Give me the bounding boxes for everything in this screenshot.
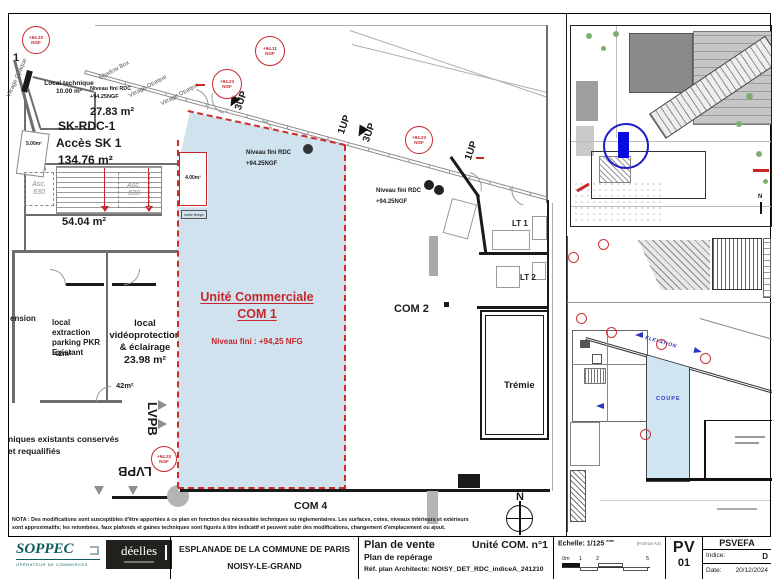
marker-ring [598,239,609,250]
doc-type2: Plan de repérage [364,552,548,562]
plan-sheet: Vitrage Opaque Shadow Box Vitrage Opaque… [0,0,784,588]
room-label-video: localvidéoprotection& éclairage 23.98 m² [108,318,182,367]
canopy-line [95,25,547,26]
com2-niveau: Niveau fini RDC+94.25NGF [376,186,421,208]
niveau-label: Niveau fini RDC+94.25NGF [90,86,131,101]
level-badge: +94.23NGF [405,126,433,154]
right-boundary [552,203,553,491]
lt1-label: LT 1 [512,219,528,228]
detail-plan-inset: COUPE ELEVATION [567,236,772,532]
project-cell: ESPLANADE DE LA COMMUNE DE PARIS NOISY-L… [170,536,358,579]
coupe-region [646,355,690,482]
small-area: 5.00m² [26,141,42,147]
equipment [492,230,530,250]
equipment [496,266,520,288]
doc-ref: Réf. plan Architecte: NOISY_DET_RDC_indi… [364,566,548,573]
doc-unit: Unité COM. n°1 [472,539,548,551]
tree-icon [586,33,592,39]
level-badge: +94.11NGF [255,36,285,66]
level-badge: +94.23NGF [212,69,242,99]
sheet-num: 01 [666,557,702,569]
wall [12,250,15,403]
canopy-edge [546,25,548,203]
conserves-note: niques existants conservéset requalifiés [8,434,119,458]
marker-ring [576,313,587,324]
tremie-shaft-inner [485,315,544,435]
sk-access: Accès SK 1 [56,136,121,150]
wall [458,474,480,488]
marker-ring [568,252,579,263]
lvpb-label: LVPB [118,464,152,479]
hall-area: 54.04 m² [62,216,106,228]
flow-arrow [128,486,138,495]
com4-label: COM 4 [294,500,327,512]
flow-arrow [158,419,167,429]
equipment [532,216,547,240]
marker-ring [700,353,711,364]
column-dot [434,185,444,195]
nota-note: NOTA : Des modifications sont susceptibl… [12,516,560,533]
column-dot [424,180,434,190]
gaine-mark [476,157,484,159]
site-north-label: N [758,194,762,200]
wall [12,250,178,253]
elevator-asc-630: Asc.630 [118,172,150,208]
date-label: Date: [706,567,722,574]
meta-cell: PSVEFA Indice: D Date: 20/12/2024 [702,536,771,579]
room-4m2-note: sortie tempo [181,210,207,219]
column-dot [303,144,313,154]
indice-value: D [762,552,768,561]
scale-label: Echelle: 1/125 [558,540,604,547]
document-cell: Plan de vente Unité COM. n°1 Plan de rep… [358,536,553,579]
sheet-number-cell: PV 01 [665,536,702,579]
soppec-glyph [90,546,99,555]
com1-niveau-rdc: Niveau fini RDC+94.25NGF [246,148,291,170]
wall [479,252,549,255]
tree-icon [763,179,768,184]
com1-title-block: Unité Commerciale COM 1 Niveau fini : +9… [190,290,324,346]
project-title: ESPLANADE DE LA COMMUNE DE PARIS [171,544,358,554]
wall [180,489,550,492]
marker-ring [640,429,651,440]
scale-bar: 0m 1 2 5 [562,556,652,570]
com2-name: COM 2 [394,303,429,315]
video-area2: 42m² [116,381,134,390]
tree-icon [601,46,606,51]
marker-ring [656,339,667,350]
stair-arrow-head [101,206,109,212]
wall [112,496,170,499]
marker-ring [606,327,617,338]
sheet-code: PV [666,539,702,557]
column [444,302,449,307]
elevation-arrow [635,332,643,338]
elevation-arrow [596,403,604,409]
coupe-label: COUPE [656,396,681,402]
scale-cell: Echelle: 1/125 ème (Format A3) 0m 1 2 5 [553,536,665,579]
tree-icon [736,121,742,127]
area-2783: 27.83 m² [90,106,134,118]
doc-type: Plan de vente [364,539,435,551]
site-plan-inset: N [570,25,772,227]
wall [477,306,549,309]
lt2-label: LT 2 [520,273,536,282]
program-label: PSVEFA [703,536,771,550]
beam-line [66,283,104,286]
logo-soppec: SOPPEC OPÉRATEUR DE COMMERCES [16,541,102,573]
tree-icon [746,93,753,100]
flow-arrow [94,486,104,495]
com1-boundary [344,145,346,491]
com1-niveau-fini: Niveau fini : +94,25 NFG [190,337,324,346]
flow-arrow [158,400,167,410]
stair-arrow [104,168,105,208]
level-badge: +94.23NGF [151,446,177,472]
tremie-label: Trémie [504,380,535,391]
gaine-mark [196,84,205,86]
com1-title: Unité Commerciale [190,290,324,304]
logo-deelles: déelles [106,540,172,569]
date-value: 20/12/2024 [735,567,768,574]
beam-line [112,283,156,286]
elevator-asc-630: Asc.630 [24,172,54,206]
scale-format: (Format A3) [637,541,661,546]
level-badge: +94.23NGF [22,26,50,54]
column [429,236,438,276]
tree-icon [756,151,762,157]
indice-label: Indice: [706,552,725,561]
extraction-area: 42m² [54,349,72,358]
extension-label: ension [10,314,36,323]
com1-name: COM 1 [190,307,324,321]
sk-area: 134.76 m² [58,153,113,167]
room-4m2: 4.00m² [179,152,207,206]
unit-highlight-circle [603,123,649,169]
sk-name: SK-RDC-1 [58,119,115,133]
project-city: NOISY-LE-GRAND [171,561,358,571]
tree-icon [613,31,619,37]
